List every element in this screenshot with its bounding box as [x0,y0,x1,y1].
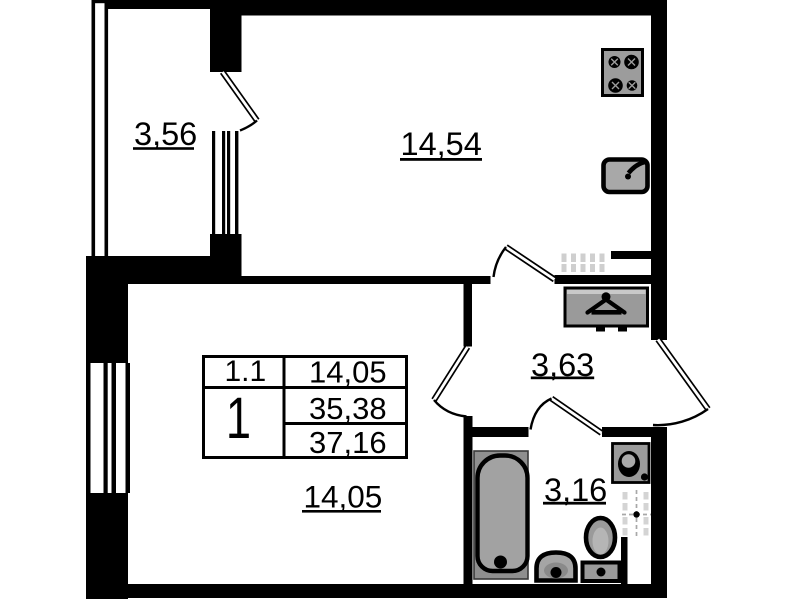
svg-text:3,56: 3,56 [134,116,197,152]
svg-text:14,54: 14,54 [401,126,482,162]
svg-text:1.1: 1.1 [225,355,267,388]
svg-text:1: 1 [226,387,251,452]
svg-text:14,05: 14,05 [309,355,387,390]
svg-text:14,05: 14,05 [304,479,383,515]
svg-text:37,16: 37,16 [309,425,387,460]
svg-text:35,38: 35,38 [309,391,387,426]
